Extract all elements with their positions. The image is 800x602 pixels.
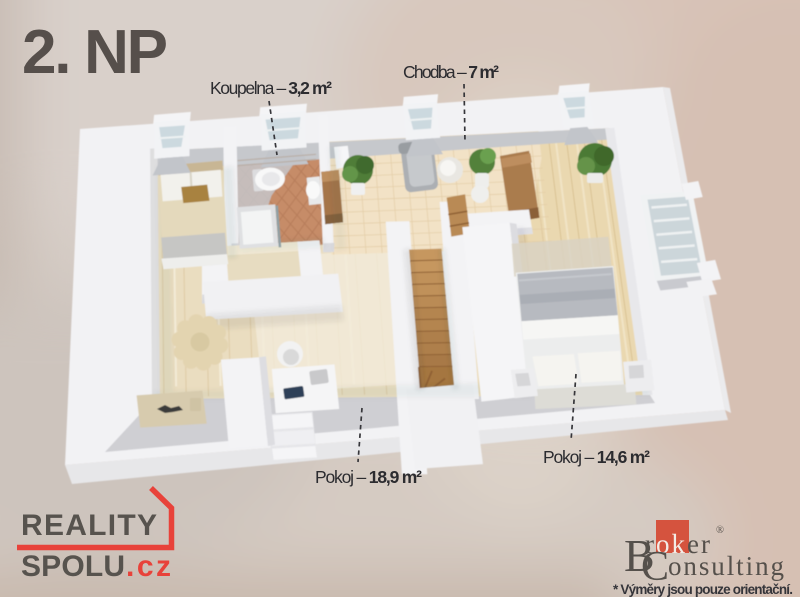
svg-text:Pokoj – 14,6 m²: Pokoj – 14,6 m²: [543, 447, 650, 467]
svg-text:2. NP: 2. NP: [22, 18, 168, 87]
svg-text:®: ®: [716, 525, 724, 536]
svg-text:* Výměry jsou pouze orientační: * Výměry jsou pouze orientační.: [613, 582, 793, 597]
svg-text:.cz: .cz: [126, 550, 171, 583]
svg-text:onsulting: onsulting: [668, 551, 784, 581]
svg-text:Chodba – 7 m²: Chodba – 7 m²: [403, 62, 499, 82]
svg-text:Pokoj – 18,9 m²: Pokoj – 18,9 m²: [315, 467, 422, 487]
svg-text:Koupelna – 3,2 m²: Koupelna – 3,2 m²: [210, 78, 332, 98]
svg-text:SPOLU: SPOLU: [21, 550, 125, 583]
svg-text:REALITY: REALITY: [21, 509, 157, 542]
